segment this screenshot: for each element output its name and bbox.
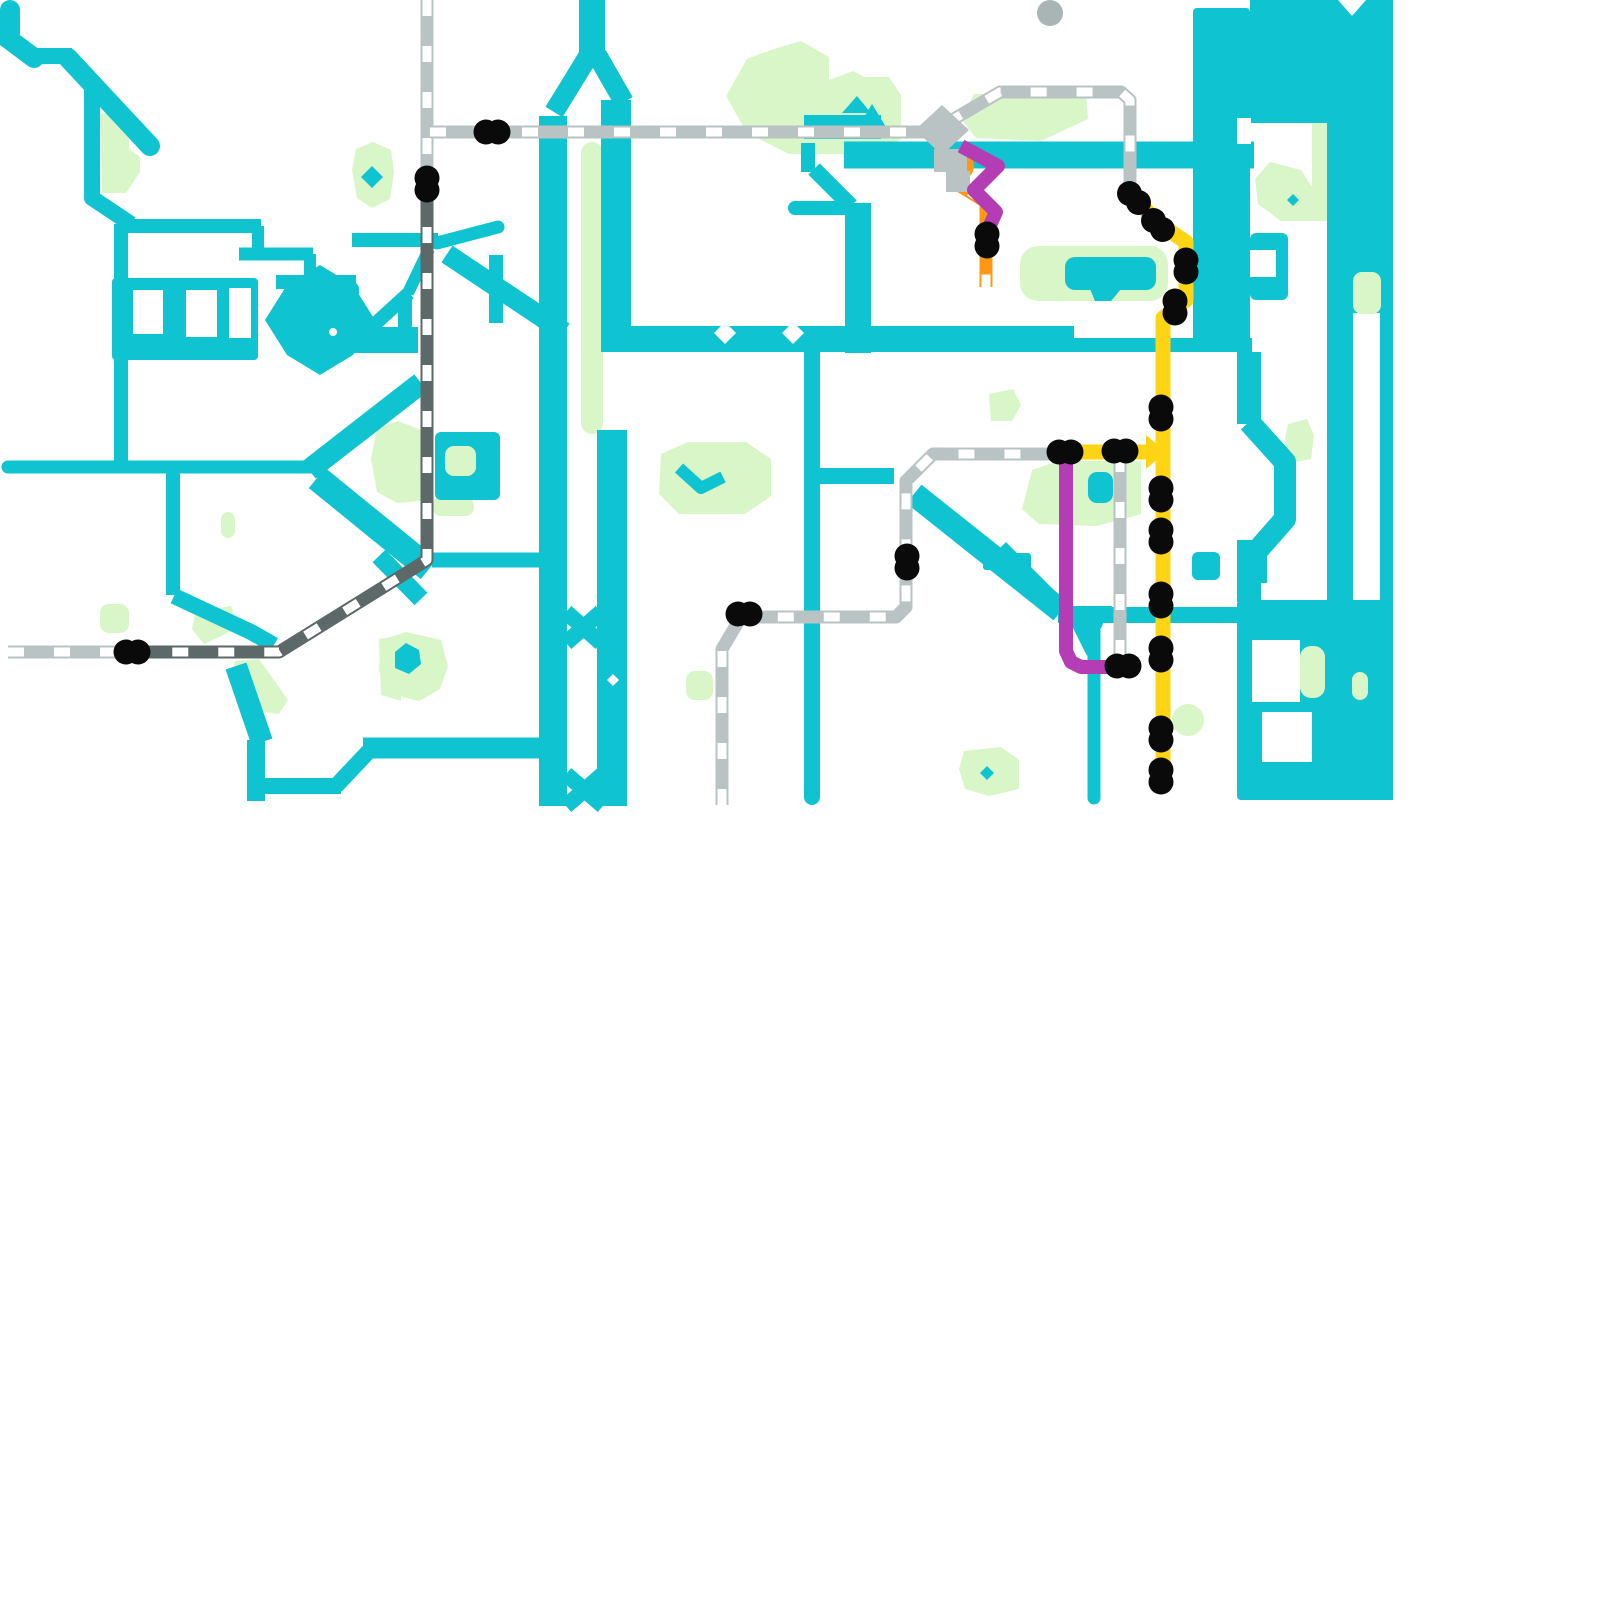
station-marker[interactable]	[1105, 654, 1142, 679]
park	[371, 421, 421, 503]
waterway	[1193, 8, 1250, 346]
station-marker[interactable]	[1149, 582, 1174, 619]
map-background-cutout	[1353, 313, 1380, 600]
station-marker[interactable]	[114, 640, 151, 665]
park	[1172, 704, 1204, 736]
map-background-cutout	[329, 328, 337, 336]
station-marker[interactable]	[1149, 716, 1174, 753]
station-marker[interactable]	[895, 544, 920, 581]
map-background-cutout	[133, 290, 163, 334]
station-marker[interactable]	[726, 602, 763, 627]
map-background-cutout	[186, 290, 217, 337]
terminus-circle	[1037, 0, 1063, 26]
station-marker[interactable]	[1149, 636, 1174, 673]
map-svg[interactable]	[0, 0, 1600, 1600]
station-marker[interactable]	[474, 120, 511, 145]
station-marker[interactable]	[415, 166, 440, 203]
station-marker[interactable]	[1149, 758, 1174, 795]
station-marker[interactable]	[1149, 476, 1174, 513]
park	[1300, 646, 1325, 698]
map-background-cutout	[1237, 118, 1251, 144]
map-background-cutout	[1262, 712, 1312, 762]
map-background-cutout	[229, 288, 251, 338]
park	[1353, 272, 1381, 314]
station-marker[interactable]	[1047, 440, 1084, 465]
park	[445, 446, 476, 476]
map-background-cutout	[1250, 250, 1276, 277]
waterway	[1065, 257, 1156, 290]
interchange-step	[946, 171, 970, 192]
park	[1352, 672, 1368, 700]
waterway	[1192, 552, 1220, 580]
waterway	[1250, 0, 1328, 123]
station-marker[interactable]	[1174, 248, 1199, 285]
station-marker[interactable]	[1149, 395, 1174, 432]
map-background-cutout	[1252, 640, 1300, 702]
waterway	[1088, 472, 1113, 503]
park	[686, 671, 713, 700]
park	[581, 142, 603, 434]
station-marker[interactable]	[1102, 439, 1139, 464]
city-transit-map[interactable]	[0, 0, 1600, 1605]
station-marker[interactable]	[975, 222, 1000, 259]
station-marker[interactable]	[1163, 289, 1188, 326]
station-marker[interactable]	[1149, 518, 1174, 555]
park	[100, 604, 129, 633]
park	[221, 512, 235, 538]
